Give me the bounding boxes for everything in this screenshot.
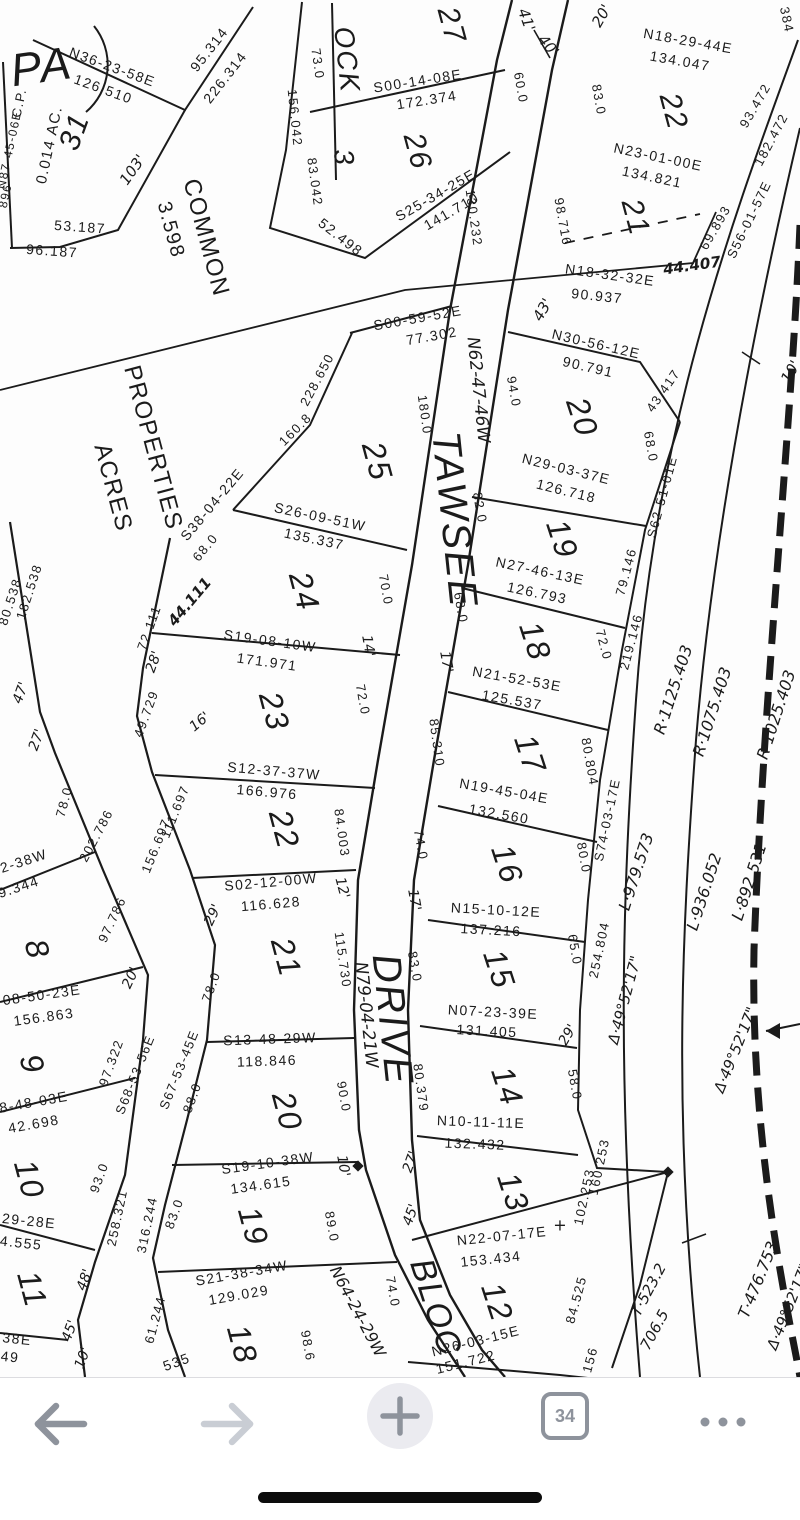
map-label: 43.417	[643, 366, 683, 415]
map-label: BLOC	[402, 1254, 469, 1361]
map-label: 89.0	[322, 1210, 342, 1243]
map-label: 27	[430, 2, 472, 48]
map-label: 125.537	[481, 687, 544, 713]
map-label: R·1125.403	[650, 643, 697, 737]
map-label: 8-48-03E	[0, 1088, 69, 1116]
map-label: 72.0	[353, 683, 373, 716]
map-label: N64-24-29W	[326, 1263, 390, 1362]
map-label: 4.555	[0, 1233, 43, 1253]
map-label: 20	[265, 1087, 310, 1136]
map-label: 24	[282, 567, 327, 616]
map-label: S56-01-57E	[724, 178, 774, 260]
map-label: S13-48-29W	[223, 1029, 317, 1048]
map-label: 90.0	[334, 1080, 354, 1113]
map-label: COMMON	[177, 176, 234, 300]
map-label: 74.0	[411, 828, 431, 861]
map-label: 73.0	[308, 47, 327, 80]
tabs-count-icon: 34	[541, 1392, 589, 1440]
map-label: 156.697	[138, 816, 173, 875]
map-label: 29'	[201, 902, 225, 928]
map-label: 10'	[777, 357, 800, 386]
map-label: 41'	[514, 6, 539, 34]
map-label: 19	[539, 515, 585, 564]
map-label: 65.0	[565, 933, 585, 966]
map-label: 70.0	[376, 573, 396, 606]
map-label: 26	[396, 128, 438, 174]
map-label: 78.0	[199, 969, 224, 1004]
tab-count: 34	[555, 1406, 575, 1427]
map-label: 84.003	[331, 808, 353, 858]
map-line	[754, 225, 800, 1377]
map-label: 384	[777, 5, 797, 34]
plat-map-document[interactable]: PAN36-23-58E126.51095.314226.314310.014 …	[0, 0, 800, 1377]
map-label: S21-38-34W	[194, 1257, 289, 1289]
map-label: 80.804	[578, 737, 601, 788]
map-label: PA	[7, 36, 76, 96]
map-label: 77.302	[405, 323, 459, 348]
map-label: 15	[476, 945, 522, 994]
map-label: 22	[262, 805, 307, 854]
map-label: N10-11-11E	[437, 1112, 526, 1131]
map-label: 3.598	[153, 199, 189, 260]
map-label: 14'	[358, 634, 378, 658]
map-label: L·936.052	[683, 851, 726, 933]
map-label: 20'	[588, 1, 615, 30]
map-label: 47'	[10, 680, 32, 706]
map-label: 134.047	[649, 48, 712, 74]
forward-arrow-icon	[192, 1394, 264, 1454]
map-label: 27'	[26, 727, 48, 753]
map-label: 131.405	[456, 1021, 518, 1040]
map-label: 88.0	[180, 1080, 205, 1115]
map-label: 10'	[333, 1154, 353, 1178]
map-label: N22-07-17E	[456, 1223, 548, 1248]
map-label: 58.0	[565, 1068, 585, 1101]
map-label: 74.0	[383, 1275, 403, 1308]
map-label: 18	[512, 617, 558, 666]
map-label: 115.730	[332, 931, 355, 989]
map-label: 2-38W	[0, 846, 49, 876]
map-label: 156.863	[12, 1005, 75, 1029]
map-label: 25	[355, 437, 400, 486]
map-label: 160.8	[276, 410, 315, 449]
plus-icon	[380, 1396, 420, 1436]
map-label: S38-04-22E	[177, 465, 247, 544]
map-label: 10	[7, 1156, 52, 1204]
map-label: R·1075.403	[689, 665, 736, 759]
new-tab-button[interactable]	[367, 1383, 433, 1449]
map-label: 19	[231, 1203, 276, 1251]
map-label: 22	[652, 88, 694, 134]
map-label: 12	[474, 1278, 520, 1327]
map-label: 182.472	[751, 111, 791, 169]
plat-map-svg: PAN36-23-58E126.51095.314226.314310.014 …	[0, 0, 800, 1377]
map-label: 96.187	[26, 241, 79, 261]
map-label: 21	[264, 933, 309, 982]
map-label: S62-51-01E	[644, 454, 680, 539]
map-label: 17'	[436, 650, 456, 674]
map-label: 153.434	[460, 1248, 522, 1270]
forward-button[interactable]	[192, 1394, 264, 1454]
map-label: +	[553, 1216, 566, 1235]
back-button[interactable]	[24, 1394, 96, 1454]
map-label: S19-10-38W	[220, 1148, 315, 1177]
map-label: T·476.753	[734, 1239, 782, 1321]
map-label: 132.560	[468, 801, 531, 827]
map-label: 17	[507, 730, 553, 779]
map-label: 94.0	[504, 375, 524, 408]
map-label: 90.937	[571, 285, 624, 306]
map-label: 49.729	[131, 688, 162, 739]
map-label: 78.0	[53, 785, 76, 819]
map-label: 38E	[2, 1329, 33, 1348]
map-label: 44.111	[163, 574, 215, 631]
map-label: ACRES	[88, 441, 137, 535]
map-label: 11	[10, 1267, 54, 1312]
map-label: 53.187	[54, 217, 107, 237]
map-label: 61.244	[141, 1294, 168, 1345]
map-label: 90.791	[561, 353, 615, 380]
map-label: S02-12-00W	[224, 870, 319, 894]
map-label: 129.029	[207, 1282, 270, 1308]
ellipsis-icon	[693, 1402, 753, 1442]
map-label: 258.321	[104, 1188, 131, 1247]
map-label: 21	[614, 194, 656, 240]
home-indicator[interactable]	[258, 1492, 542, 1503]
map-label: 8	[18, 935, 58, 963]
map-label: 132.432	[444, 1135, 506, 1153]
map-label: N87-45-06E	[0, 109, 24, 190]
map-label: 42.698	[7, 1111, 61, 1136]
map-label: 83.0	[589, 83, 609, 116]
map-label: 18	[220, 1321, 265, 1369]
map-label: 896	[0, 182, 15, 209]
map-label: N15-10-12E	[450, 899, 541, 920]
map-label: 20	[559, 392, 606, 442]
map-label: 17'	[404, 888, 424, 912]
map-label: Δ·49°52'17"	[604, 954, 645, 1047]
map-label: 85.310	[426, 718, 448, 768]
map-label: 40'	[534, 31, 563, 60]
map-label: 130.232	[463, 188, 486, 247]
map-label: 43'	[529, 295, 556, 324]
map-label: 80.379	[410, 1063, 432, 1113]
map-label: 84.525	[562, 1274, 589, 1325]
map-label: 254.804	[586, 920, 613, 979]
map-label: 98.6	[298, 1329, 318, 1362]
map-label: 14	[484, 1062, 530, 1111]
map-label: 156	[579, 1345, 600, 1374]
map-label: L·892.531	[728, 841, 771, 923]
map-label: 60.0	[511, 71, 531, 104]
tabs-button[interactable]: 34	[541, 1392, 589, 1440]
map-label: R·1025.403	[753, 668, 800, 762]
map-label: 3	[328, 147, 361, 168]
map-label: 535	[161, 1349, 193, 1374]
map-label: 16	[484, 840, 530, 889]
map-label: 9	[13, 1050, 53, 1078]
map-label: 180.0	[415, 394, 435, 436]
map-label: 16'	[187, 709, 214, 735]
map-label: 27'	[400, 1149, 422, 1175]
map-label: 72.0	[593, 628, 616, 662]
map-label: 49	[0, 1348, 20, 1366]
corner-marker	[662, 1166, 673, 1177]
map-line	[682, 1234, 706, 1243]
map-label: 10'	[72, 1345, 94, 1371]
map-label: 44.407	[661, 252, 722, 278]
map-label: 29'	[556, 1022, 581, 1049]
map-label: 83.042	[304, 157, 326, 207]
map-label: 80.0	[574, 841, 594, 874]
map-label: 118.846	[237, 1052, 298, 1070]
map-label: 137.216	[460, 920, 522, 939]
map-label: 12'	[331, 875, 352, 900]
map-label: 98.716	[551, 197, 574, 248]
map-label: 116.628	[240, 893, 301, 914]
map-label: 52.498	[315, 215, 366, 260]
map-label: 79.146	[612, 546, 639, 597]
back-arrow-icon	[24, 1394, 96, 1454]
map-label: 23	[252, 687, 297, 736]
map-label: Δ·49°52'17"	[710, 1004, 761, 1096]
browser-screen: PAN36-23-58E126.51095.314226.314310.014 …	[0, 0, 800, 1520]
map-label: 93.0	[87, 1160, 112, 1195]
map-label: 9.344	[0, 873, 41, 901]
more-button[interactable]	[693, 1402, 753, 1442]
map-label: 171.971	[236, 650, 299, 674]
map-label: 166.976	[236, 781, 298, 802]
map-label: N07-23-39E	[447, 1001, 538, 1022]
map-label: 72.111	[134, 603, 164, 652]
map-label: L·979.573	[615, 831, 658, 913]
map-label: 68.0	[641, 430, 661, 463]
arrowhead-icon	[766, 1023, 780, 1039]
map-label: 134.615	[229, 1173, 292, 1197]
